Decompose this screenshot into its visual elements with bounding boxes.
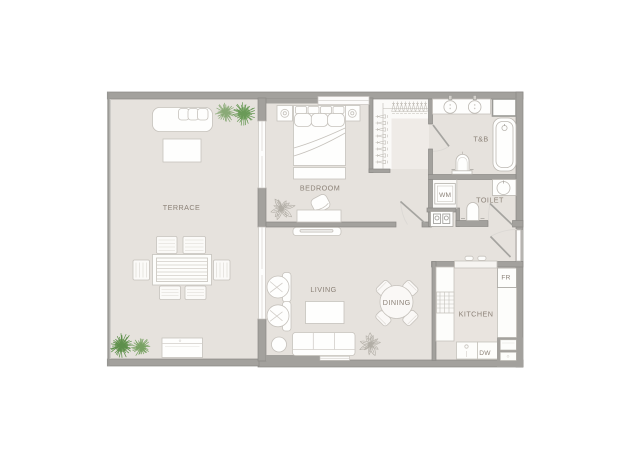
svg-text:LIVING: LIVING [310,285,336,294]
svg-text:KITCHEN: KITCHEN [459,310,494,319]
svg-text:BEDROOM: BEDROOM [300,184,340,193]
svg-text:T&B: T&B [473,135,488,144]
svg-text:DINING: DINING [383,298,411,307]
svg-text:DW: DW [479,350,491,357]
svg-text:TOILET: TOILET [476,196,504,205]
svg-text:TERRACE: TERRACE [163,203,201,212]
svg-text:FR: FR [501,275,510,282]
svg-text:WM: WM [439,192,451,199]
